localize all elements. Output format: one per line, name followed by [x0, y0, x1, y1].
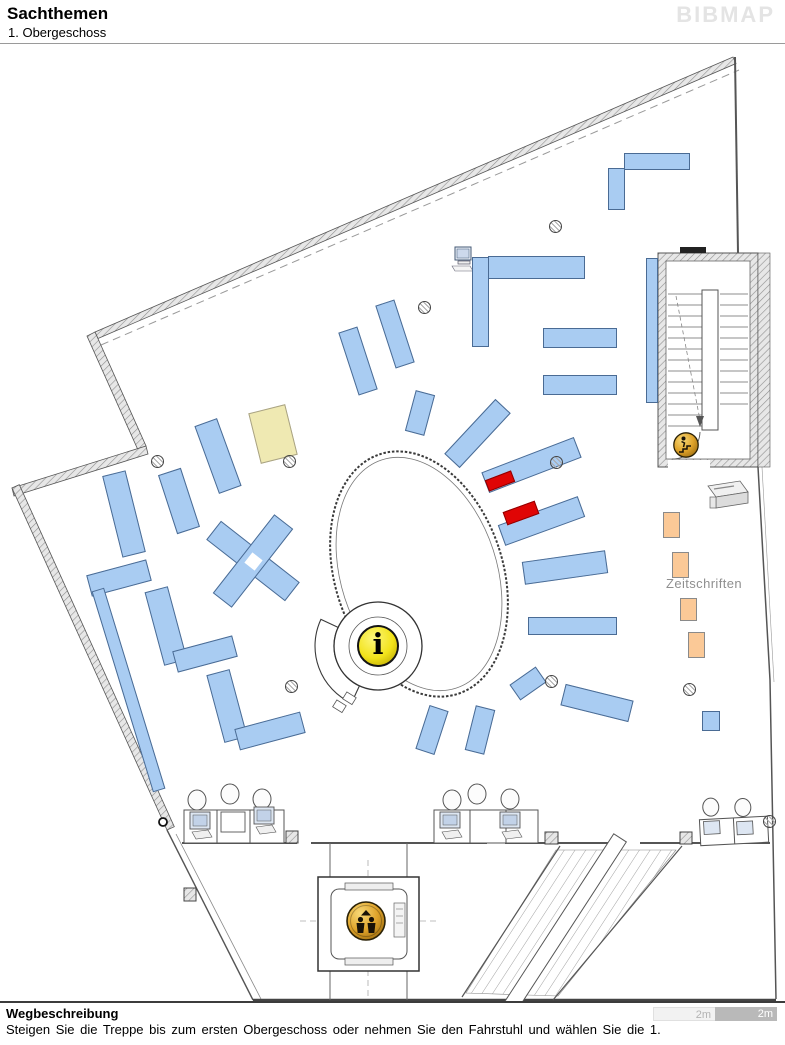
printer-icon — [708, 481, 748, 508]
workstation-area-right — [698, 795, 768, 845]
column — [550, 456, 563, 469]
magazine-shelf — [663, 512, 680, 538]
workstation-area-left — [184, 784, 284, 843]
lower-staircase — [462, 834, 682, 1002]
shelf — [608, 168, 625, 210]
scale-segment-2: 2m — [715, 1007, 777, 1021]
scale-segment-1: 2m — [653, 1007, 715, 1021]
info-icon: i — [357, 625, 399, 667]
shelf — [543, 328, 617, 348]
shelf — [488, 256, 585, 279]
column — [683, 683, 696, 696]
magazine-shelf — [672, 552, 689, 578]
computer-icon — [452, 247, 473, 271]
area-label: Zeitschriften — [666, 576, 742, 591]
directions-heading: Wegbeschreibung — [6, 1006, 118, 1021]
shelf — [472, 257, 489, 347]
column — [418, 301, 431, 314]
column — [763, 815, 776, 828]
column — [151, 455, 164, 468]
scale-bar: 2m 2m — [653, 1007, 777, 1021]
workstation-area-center — [434, 784, 538, 843]
shelf — [543, 375, 617, 395]
column — [283, 455, 296, 468]
lobby-walls — [159, 818, 770, 1000]
stairs-down-icon — [673, 432, 699, 458]
directions-text: Steigen Sie die Treppe bis zum ersten Ob… — [6, 1022, 661, 1037]
column — [549, 220, 562, 233]
shelf — [646, 258, 658, 403]
shelf — [624, 153, 690, 170]
column — [285, 680, 298, 693]
elevator-icon — [346, 901, 386, 941]
column — [545, 675, 558, 688]
info-glyph: i — [357, 625, 399, 667]
shelf — [528, 617, 617, 635]
shelf — [702, 711, 720, 731]
magazine-shelf — [680, 598, 697, 621]
directions-panel: Wegbeschreibung Steigen Sie die Treppe b… — [0, 1001, 785, 1045]
floor-map: i Zeitschriften — [0, 0, 785, 1002]
magazine-shelf — [688, 632, 705, 658]
